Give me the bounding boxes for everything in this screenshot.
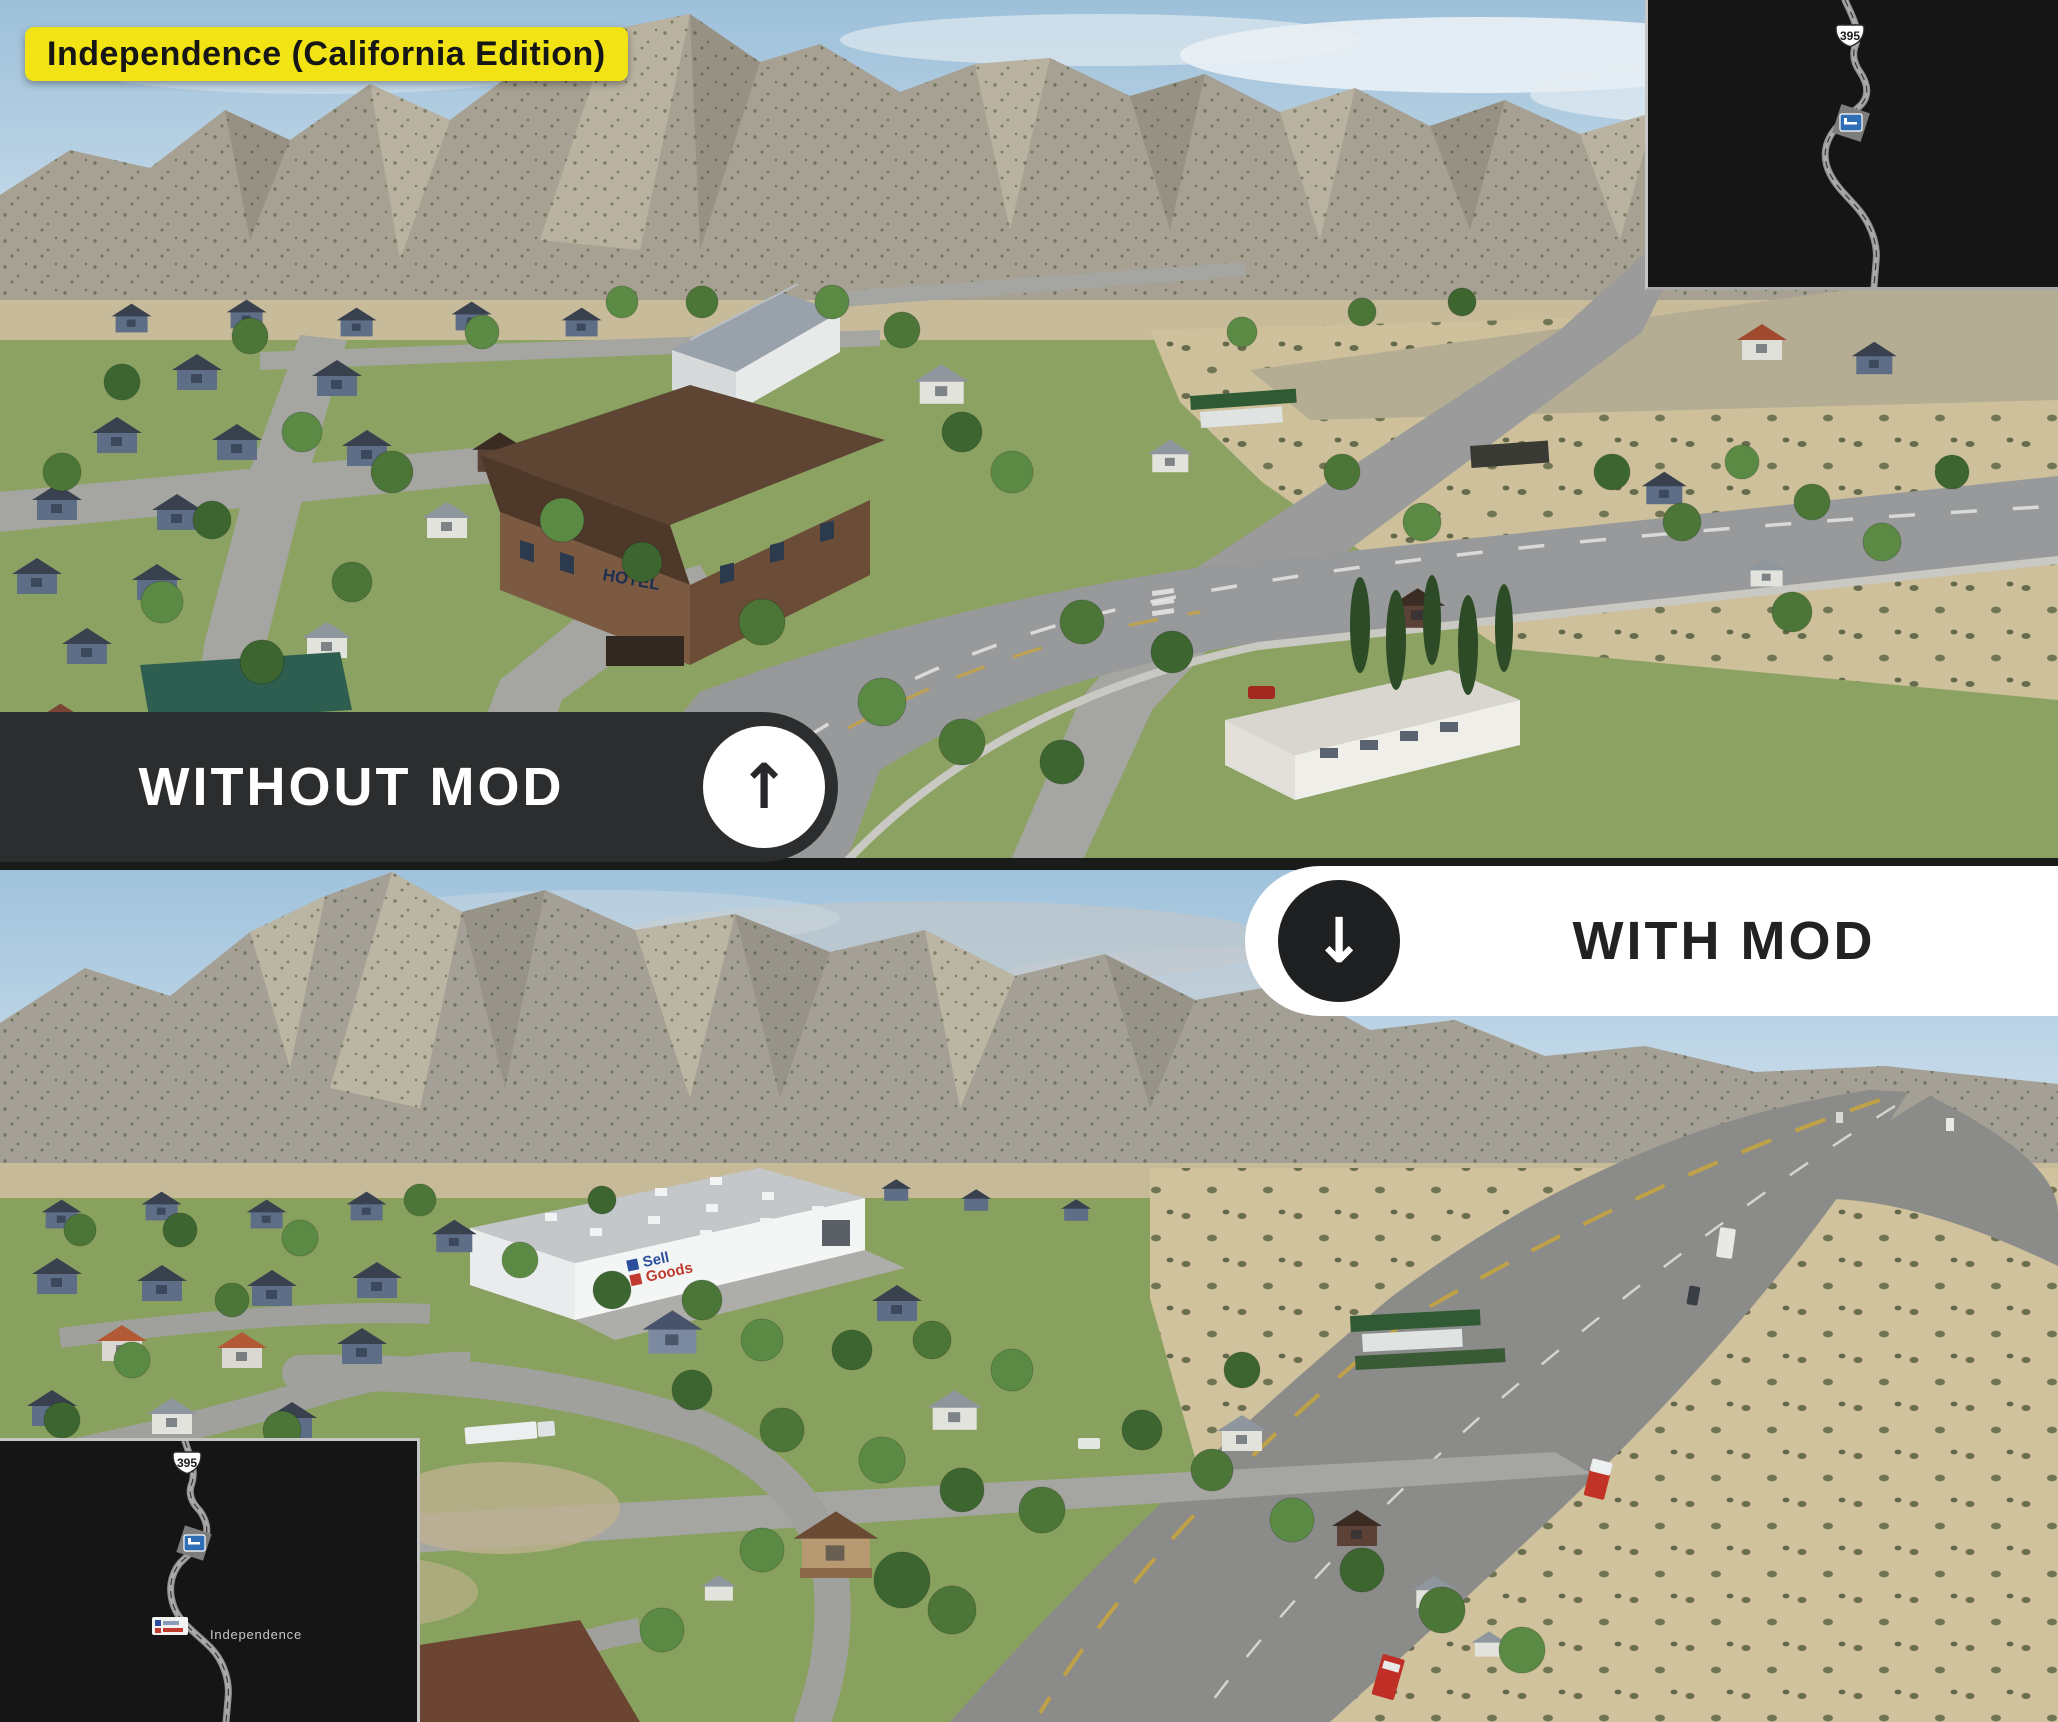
- without-mod-label: WITHOUT MOD: [0, 760, 703, 814]
- city-area-marker: [1832, 104, 1870, 142]
- title-badge-label: Independence (California Edition): [47, 35, 606, 74]
- comparison-image: HOTEL: [0, 0, 2058, 1722]
- white-pickup: [1078, 1438, 1100, 1449]
- route-shield: 395: [173, 1452, 201, 1474]
- route-shield: 395: [1836, 25, 1864, 47]
- up-arrow-button: ↑: [703, 726, 825, 848]
- title-badge: Independence (California Edition): [25, 27, 628, 81]
- up-arrow-icon: ↑: [738, 756, 790, 818]
- red-car: [1248, 686, 1275, 699]
- hotel-entrance: [606, 636, 684, 666]
- distant-vehicle: [1836, 1112, 1843, 1123]
- with-mod-label: WITH MOD: [1400, 914, 2058, 968]
- loading-door: [822, 1220, 850, 1246]
- with-mod-banner: ↓ WITH MOD: [1245, 866, 2058, 1016]
- crosswalk: [1152, 588, 1174, 616]
- minimap-bottom-left: 395 Independence: [0, 1438, 420, 1722]
- without-mod-banner: WITHOUT MOD ↑: [0, 712, 838, 862]
- down-arrow-button: ↓: [1278, 880, 1400, 1002]
- svg-text:395: 395: [1840, 29, 1860, 43]
- minimap-top-right: 395: [1645, 0, 2058, 290]
- down-arrow-icon: ↓: [1313, 910, 1365, 972]
- company-marker: [152, 1617, 188, 1635]
- distant-vehicle: [1946, 1118, 1954, 1131]
- city-label: Independence: [210, 1627, 302, 1642]
- svg-text:395: 395: [177, 1456, 197, 1470]
